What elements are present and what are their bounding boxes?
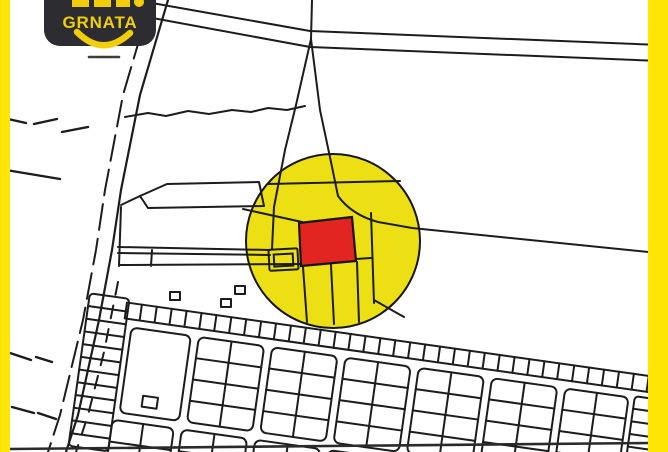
vertical-road	[311, 0, 312, 39]
right-side-strip	[648, 0, 668, 452]
map-canvas: GRNATA	[0, 0, 668, 452]
map-screenshot: GRNATA	[0, 0, 668, 452]
selected-plot	[299, 217, 356, 266]
left-side-strip	[0, 0, 10, 452]
logo-brand-text: GRNATA	[63, 13, 138, 32]
